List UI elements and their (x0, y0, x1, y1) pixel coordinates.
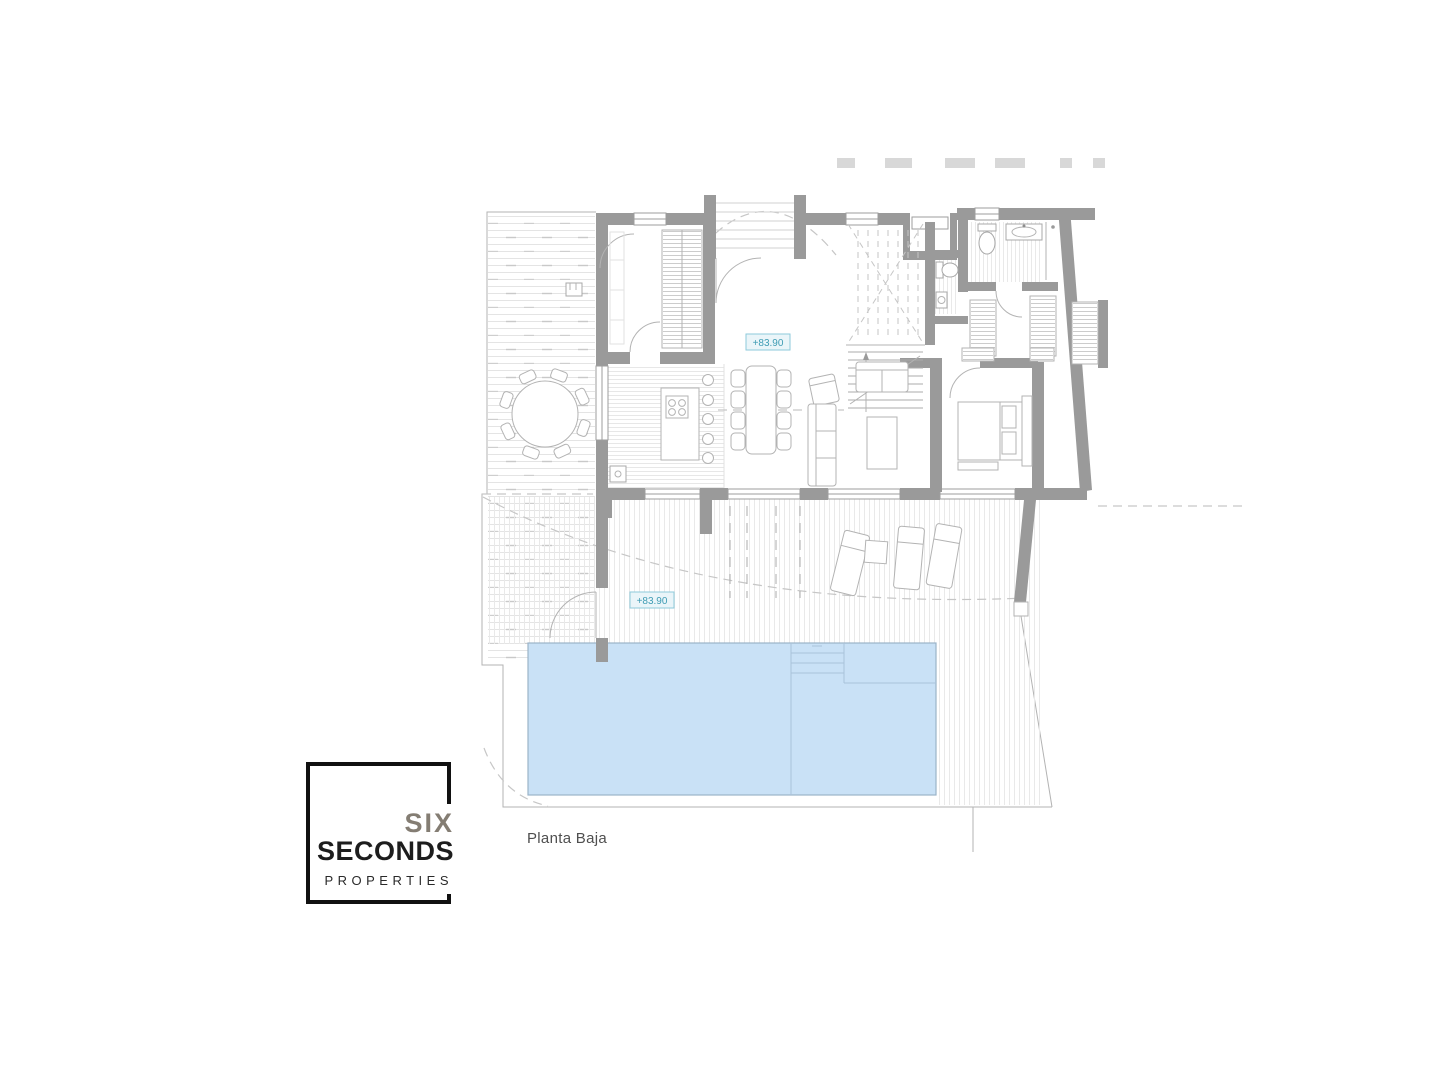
garden-gate (1014, 602, 1028, 616)
porch-wall-right (794, 195, 806, 259)
entry-steps (716, 203, 794, 248)
pillow (1002, 432, 1016, 454)
coffee-table (867, 417, 897, 469)
armchair (808, 374, 839, 407)
living-room (808, 362, 908, 486)
six-seconds-logo: SIX SECONDS PROPERTIES (306, 762, 451, 904)
svg-text:+83.90: +83.90 (753, 338, 784, 349)
kitchen-island (661, 388, 699, 460)
floorplan-drawing: +83.90 +83.90 (0, 0, 1440, 1080)
bedroom-right-wall (1032, 362, 1044, 492)
outdoor-tap-icon (566, 283, 582, 296)
toilet-icon (978, 224, 996, 254)
bed-bench (958, 462, 998, 470)
logo-word-seconds: SECONDS (317, 838, 454, 865)
wardrobes (962, 296, 1098, 364)
kitchen-sink-icon (610, 466, 626, 482)
sink-icon (936, 292, 947, 308)
plan-caption: Planta Baja (527, 830, 607, 847)
sink-icon (1006, 224, 1042, 240)
logo-border-top (306, 762, 451, 766)
floorplan-page: +83.90 +83.90 Planta Baja SIX SECONDS PR… (0, 0, 1440, 1080)
pillow (1002, 406, 1016, 428)
elevation-label-main: +83.90 (746, 334, 790, 350)
logo-border-right-top (447, 762, 451, 804)
logo-border-left (306, 762, 310, 904)
elevation-label-terrace: +83.90 (630, 592, 674, 608)
pool (528, 643, 936, 795)
bedroom (958, 396, 1032, 470)
logo-word-properties: PROPERTIES (317, 874, 453, 887)
logo-word-six: SIX (317, 810, 454, 837)
svg-text:+83.90: +83.90 (637, 596, 668, 607)
logo-border-bottom (306, 900, 451, 904)
dining-table (746, 366, 776, 454)
round-table (512, 381, 578, 447)
toilet-icon (936, 262, 958, 278)
upper-floor-ghost (837, 158, 1105, 168)
logo-border-right-bottom (447, 894, 451, 904)
shower-head-icon (1051, 225, 1055, 229)
storage-room (610, 230, 702, 348)
headboard (1022, 396, 1032, 466)
chaise-sofa (808, 404, 836, 486)
side-table (864, 540, 887, 563)
bedroom-left-wall (930, 358, 942, 492)
